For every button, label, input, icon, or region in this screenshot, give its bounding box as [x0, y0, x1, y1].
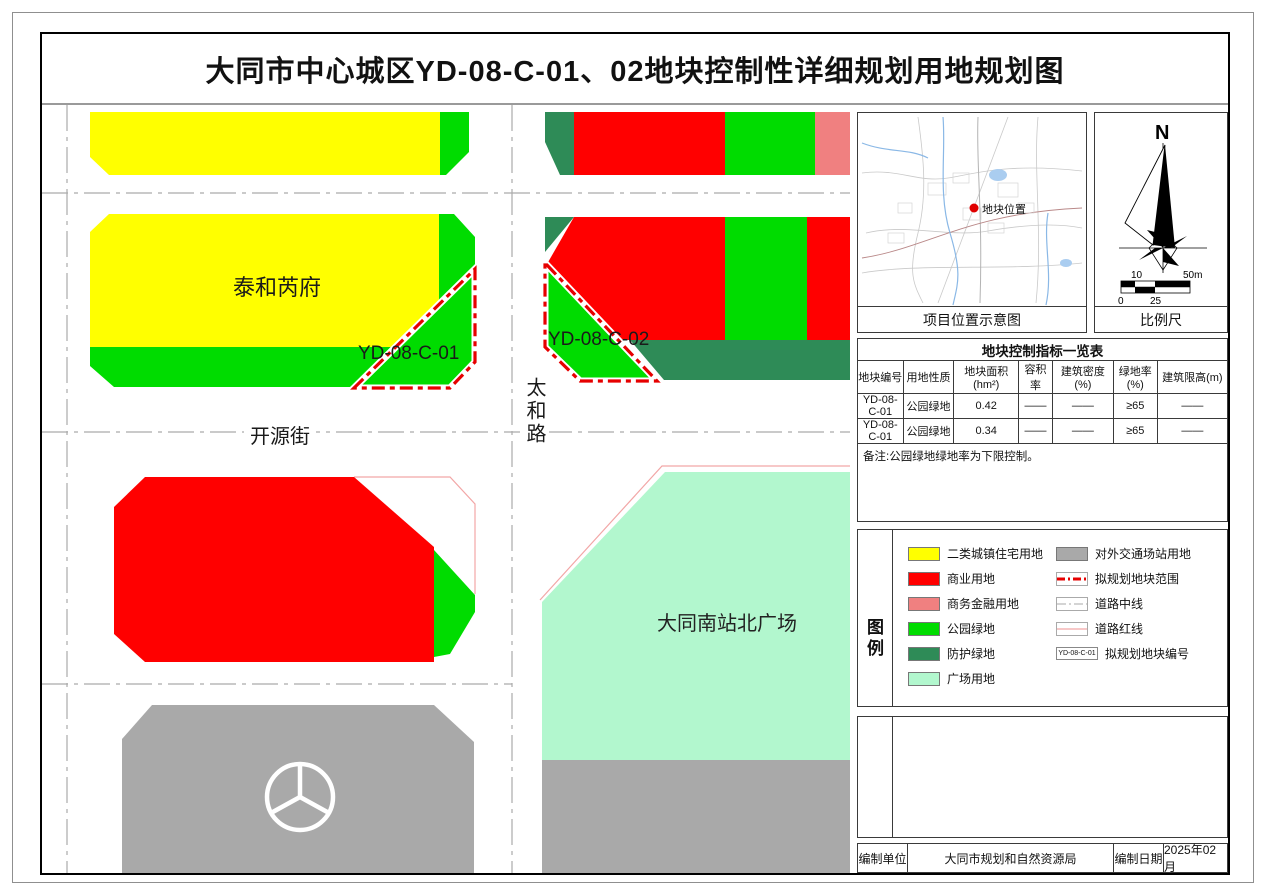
commercial-swatch [908, 572, 940, 586]
location-map-lake-2 [1060, 259, 1072, 267]
parcel-green-edge-north [440, 112, 469, 175]
label-kaiyuan-street: 开源街 [244, 420, 316, 449]
north-label: N [1155, 122, 1169, 144]
legend-item-residential: 二类城镇住宅用地 [908, 546, 1043, 561]
table-row: YD-08-C-01 公园绿地 0.34 —— —— ≥65 —— [858, 419, 1227, 444]
cell: 0.42 [954, 394, 1019, 419]
parcel-park-green-ne2 [725, 217, 807, 340]
table-note: 备注:公园绿地绿地率为下限控制。 [858, 444, 1227, 468]
col-header: 地块面积(hm²) [954, 361, 1019, 394]
scale-tick-10: 10 [1131, 270, 1143, 281]
park-green-swatch [908, 622, 940, 636]
legend-item-commercial: 商业用地 [908, 571, 995, 586]
protective-green-swatch [908, 647, 940, 661]
control-table-box: 地块控制指标一览表 地块编号 用地性质 地块面积(hm²) 容积率 建筑密度(%… [857, 338, 1228, 522]
footer-org-label: 编制单位 [858, 844, 908, 872]
scale-tick-50m: 50m [1183, 270, 1202, 281]
cell: ≥65 [1113, 419, 1157, 444]
parcel-commercial-ne1 [574, 112, 725, 175]
legend-item-park-green: 公园绿地 [908, 621, 995, 636]
cell: 公园绿地 [903, 394, 954, 419]
cell: —— [1052, 419, 1113, 444]
scale-tick-25: 25 [1150, 296, 1162, 306]
control-indicators-table: 地块编号 用地性质 地块面积(hm²) 容积率 建筑密度(%) 绿地率(%) 建… [858, 361, 1227, 444]
cell: —— [1019, 419, 1053, 444]
notes-box [857, 716, 1228, 838]
table-row: YD-08-C-01 公园绿地 0.42 —— —— ≥65 —— [858, 394, 1227, 419]
parcel-commercial-ne2-east [807, 217, 850, 340]
cell: —— [1052, 394, 1113, 419]
col-header: 地块编号 [858, 361, 903, 394]
plaza-swatch [908, 672, 940, 686]
parcel-business-finance-ne1 [815, 112, 850, 175]
footer-org-value: 大同市规划和自然资源局 [908, 844, 1114, 872]
residential-swatch [908, 547, 940, 561]
parcel-park-green-ne1 [725, 112, 815, 175]
cell: ≥65 [1113, 394, 1157, 419]
scale-caption: 比例尺 [1095, 306, 1227, 332]
location-map-lake [989, 169, 1007, 181]
scale-tick-0: 0 [1118, 296, 1124, 306]
cell: 0.34 [954, 419, 1019, 444]
legend-item-business-finance: 商务金融用地 [908, 596, 1019, 611]
col-header: 建筑限高(m) [1157, 361, 1227, 394]
parcel-protective-green-band [630, 340, 850, 380]
location-map-caption: 项目位置示意图 [858, 306, 1086, 332]
table-title: 地块控制指标一览表 [858, 339, 1227, 361]
legend-item-plot-boundary: 拟规划地块范围 [1056, 571, 1179, 586]
cell: —— [1157, 394, 1227, 419]
transport-swatch [1056, 547, 1088, 561]
road-centerline-swatch [1056, 597, 1088, 611]
drawing-frame: 大同市中心城区YD-08-C-01、02地块控制性详细规划用地规划图 [40, 32, 1230, 875]
road-redline-swatch [1056, 622, 1088, 636]
page-title: 大同市中心城区YD-08-C-01、02地块控制性详细规划用地规划图 [206, 48, 1065, 90]
plot-boundary-swatch [1056, 572, 1088, 586]
footer-row: 编制单位 大同市规划和自然资源局 编制日期 2025年02月 [857, 843, 1228, 873]
legend-item-plaza: 广场用地 [908, 671, 995, 686]
legend-item-road-centerline: 道路中线 [1056, 596, 1143, 611]
location-map-main-road [978, 117, 981, 303]
site-marker-label: 地块位置 [982, 202, 1026, 216]
legend-item-protective-green: 防护绿地 [908, 646, 995, 661]
cell: YD-08-C-01 [858, 394, 903, 419]
scale-bar [1121, 281, 1190, 293]
label-taiheruifu: 泰和芮府 [212, 270, 342, 302]
cell: YD-08-C-01 [858, 419, 903, 444]
parcel-transport-south [542, 760, 850, 873]
legend-item-road-redline: 道路红线 [1056, 621, 1143, 636]
cell: 公园绿地 [903, 419, 954, 444]
label-taihe-road: 太和路 [520, 373, 549, 450]
plot-code-swatch: YD-08-C-01 [1056, 647, 1098, 660]
legend-title: 图例 [864, 618, 886, 660]
parcel-commercial-sw [114, 477, 434, 662]
parcel-park-green-sw [434, 550, 475, 657]
col-header: 建筑密度(%) [1052, 361, 1113, 394]
map-canvas [42, 105, 850, 873]
label-plot-yd-08-c-02: YD-08-C-02 [548, 329, 649, 351]
legend-box: 图例 二类城镇住宅用地 商业用地 商务金融用地 公园绿地 防护绿地 广场用地 [857, 529, 1228, 707]
cell: —— [1157, 419, 1227, 444]
compass-box: N 10 50m 0 25 比例尺 [1094, 112, 1228, 333]
legend-item-transport: 对外交通场站用地 [1056, 546, 1191, 561]
legend-divider [892, 530, 893, 706]
land-use-map: 泰和芮府 YD-08-C-01 YD-08-C-02 开源街 太和路 大同南站北… [42, 105, 850, 873]
location-map-box: 地块位置 项目位置示意图 [857, 112, 1087, 333]
parcel-residential-north [90, 112, 440, 175]
footer-date-value: 2025年02月 [1164, 844, 1227, 872]
location-map-sketch: 地块位置 [858, 113, 1086, 306]
cell: —— [1019, 394, 1053, 419]
label-plaza: 大同南站北广场 [642, 607, 812, 636]
table-header-row: 地块编号 用地性质 地块面积(hm²) 容积率 建筑密度(%) 绿地率(%) 建… [858, 361, 1227, 394]
notes-divider [892, 717, 893, 837]
col-header: 绿地率(%) [1113, 361, 1157, 394]
north-arrow: N 10 50m 0 25 [1095, 113, 1227, 306]
business-finance-swatch [908, 597, 940, 611]
footer-date-label: 编制日期 [1114, 844, 1164, 872]
legend-item-plot-code: YD-08-C-01 拟规划地块编号 [1056, 646, 1189, 661]
col-header: 用地性质 [903, 361, 954, 394]
parcel-protective-green-ne1 [545, 112, 574, 175]
col-header: 容积率 [1019, 361, 1053, 394]
title-bar: 大同市中心城区YD-08-C-01、02地块控制性详细规划用地规划图 [42, 34, 1228, 103]
site-marker-dot [970, 204, 979, 213]
label-plot-yd-08-c-01: YD-08-C-01 [358, 343, 459, 365]
